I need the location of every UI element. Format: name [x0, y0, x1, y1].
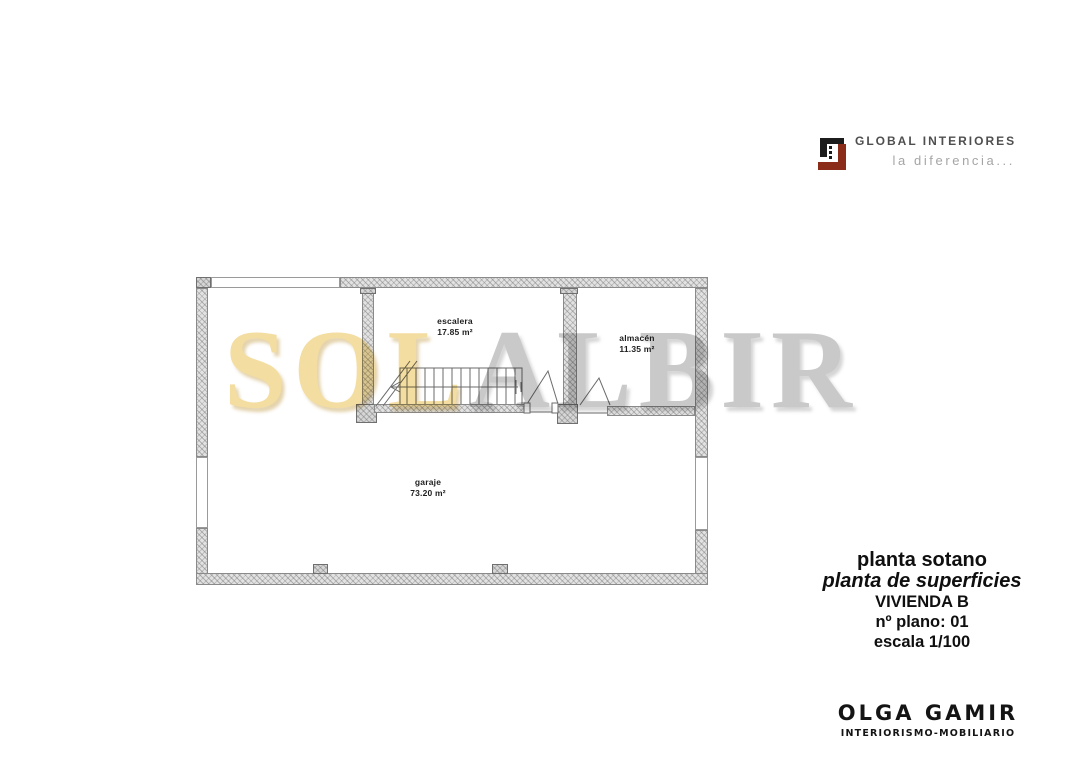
author-name: OLGA GAMIR [828, 701, 1028, 725]
watermark: SOLALBIR [224, 314, 859, 426]
window-left [196, 457, 208, 528]
logo-brand-text: GLOBAL INTERIORES [855, 134, 1015, 148]
scale-label: escala 1/100 [822, 632, 1022, 652]
title-block: planta sotano planta de superficies VIVI… [822, 550, 1022, 652]
window-top [211, 277, 340, 288]
pillar-bottom-2 [492, 564, 508, 574]
wall-interior-horizontal-a [374, 404, 527, 413]
dwelling-label: VIVIENDA B [822, 592, 1022, 612]
wall-divider-stairs [362, 288, 374, 407]
window-right [695, 457, 708, 530]
author-subtitle: INTERIORISMO-MOBILIARIO [828, 728, 1028, 739]
stairs-and-doors-linework [0, 0, 1086, 768]
wall-right-lower [695, 530, 708, 574]
wall-top [340, 277, 708, 288]
pillar-top-1 [360, 288, 376, 294]
room-label-garaje: garaje 73.20 m² [386, 477, 470, 499]
wall-left-lower [196, 528, 208, 574]
room-label-almacen: almacén 11.35 m² [595, 333, 679, 355]
pillar-bottom-1 [313, 564, 328, 574]
wall-divider-storage [563, 288, 577, 406]
wall-bottom [196, 573, 708, 585]
plan-name: planta sotano [822, 550, 1022, 571]
room-name: garaje [386, 477, 470, 488]
global-interiores-logo-icon [816, 136, 850, 172]
wall-left-upper [196, 288, 208, 457]
author-block: OLGA GAMIR INTERIORISMO-MOBILIARIO [828, 701, 1028, 739]
pillar-top-2 [560, 288, 578, 294]
room-area: 17.85 m² [413, 327, 497, 338]
room-name: almacén [595, 333, 679, 344]
plan-type: planta de superficies [822, 571, 1022, 592]
room-area: 73.20 m² [386, 488, 470, 499]
wall-right-upper [695, 288, 708, 457]
wall-interior-horizontal-b [607, 406, 695, 416]
company-logo: GLOBAL INTERIORES la diferencia... [810, 130, 1040, 190]
floor-plan-sheet: GLOBAL INTERIORES la diferencia... [0, 0, 1086, 768]
room-name: escalera [413, 316, 497, 327]
pillar-between-doors [557, 404, 578, 424]
logo-tagline-text: la diferencia... [855, 153, 1015, 168]
sheet-number: nº plano: 01 [822, 612, 1022, 632]
wall-corner-top-left [196, 277, 211, 288]
room-label-escalera: escalera 17.85 m² [413, 316, 497, 338]
room-area: 11.35 m² [595, 344, 679, 355]
